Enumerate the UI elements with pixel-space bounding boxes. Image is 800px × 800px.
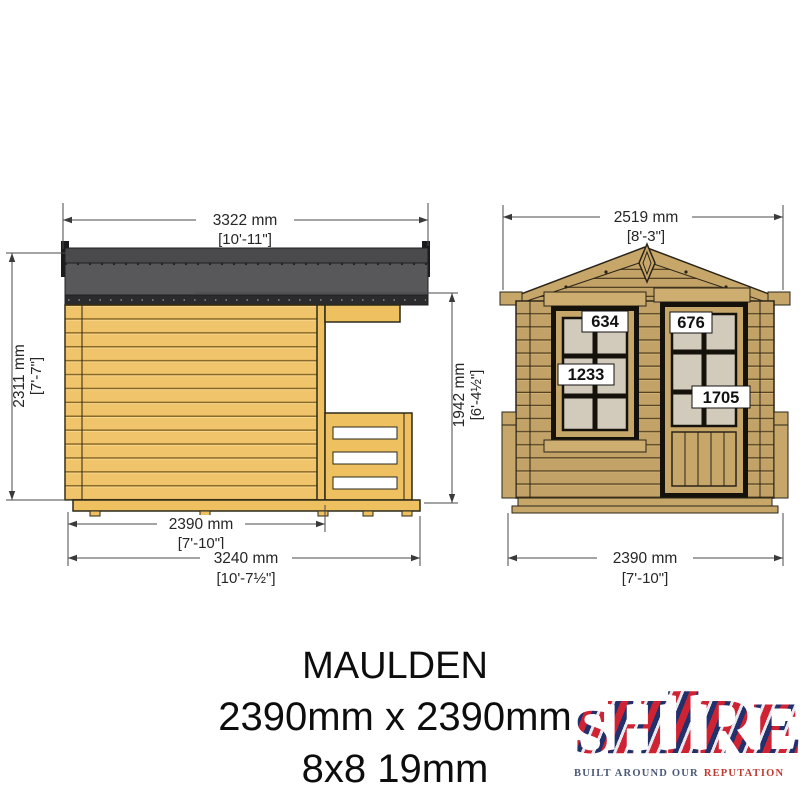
porch-beam [325,305,400,322]
dim-2390-front-mm: 2390 mm [613,550,678,567]
side-roof [61,241,430,305]
door-width-label: 676 [670,312,712,333]
dim-3240-ft: [10'-7½"] [216,570,275,587]
dimension-front-width-bottom: 2390 mm [7'-10"] [508,513,783,587]
dim-2311-ft: [7'-7"] [28,357,45,395]
dimension-side-width-top: 3322 mm [10'-11"] [63,203,428,249]
brand-tagline: BUILT AROUND OURREPUTATION [574,768,800,779]
brand-letter-s: S [574,696,607,767]
dim-2390-front-ft: [7'-10"] [622,570,669,587]
dim-2390-side-mm: 2390 mm [169,516,234,533]
window-height-label: 1233 [558,364,614,385]
dim-2311-mm: 2311 mm [11,344,28,407]
brand-logo: SHIRE BUILT AROUND OURREPUTATION [574,676,800,794]
door-height-value: 1705 [703,389,740,407]
door-width-value: 676 [677,314,705,332]
brand-name: SHIRE [574,676,800,768]
front-view: 634 1233 676 [500,205,790,587]
dim-2519-ft: [8'-3"] [627,228,665,245]
technical-drawing: 3322 mm [10'-11"] 2311 mm [7'-7"] 1942 m… [0,0,800,630]
front-base [512,498,778,513]
brand-letter-e: E [753,688,799,770]
side-view: 3322 mm [10'-11"] 2311 mm [7'-7"] 1942 m… [6,203,485,587]
shed-dimension-sheet: 3322 mm [10'-11"] 2311 mm [7'-7"] 1942 m… [0,0,800,800]
brand-letter-i: I [665,670,699,774]
window-width-label: 634 [582,311,628,332]
brand-letter-h: H [607,684,665,771]
door-height-label: 1705 [692,386,750,408]
porch-railing [325,413,412,500]
brand-letter-r: R [699,684,753,771]
side-base [73,500,420,516]
dimension-side-height-left: 2311 mm [7'-7"] [6,253,72,500]
window-height-value: 1233 [568,366,605,384]
dim-1942-ft: [6'-4½"] [468,370,485,421]
dim-3322-ft: [10'-11"] [218,231,272,248]
dim-1942-mm: 1942 mm [451,363,468,428]
tagline-left: BUILT AROUND OUR [574,768,699,779]
side-wall [65,305,325,500]
dim-2519-mm: 2519 mm [614,209,679,226]
tagline-right: REPUTATION [704,768,784,779]
dim-3240-mm: 3240 mm [214,550,279,567]
window-width-value: 634 [591,313,619,331]
dim-3322-mm: 3322 mm [213,212,278,229]
